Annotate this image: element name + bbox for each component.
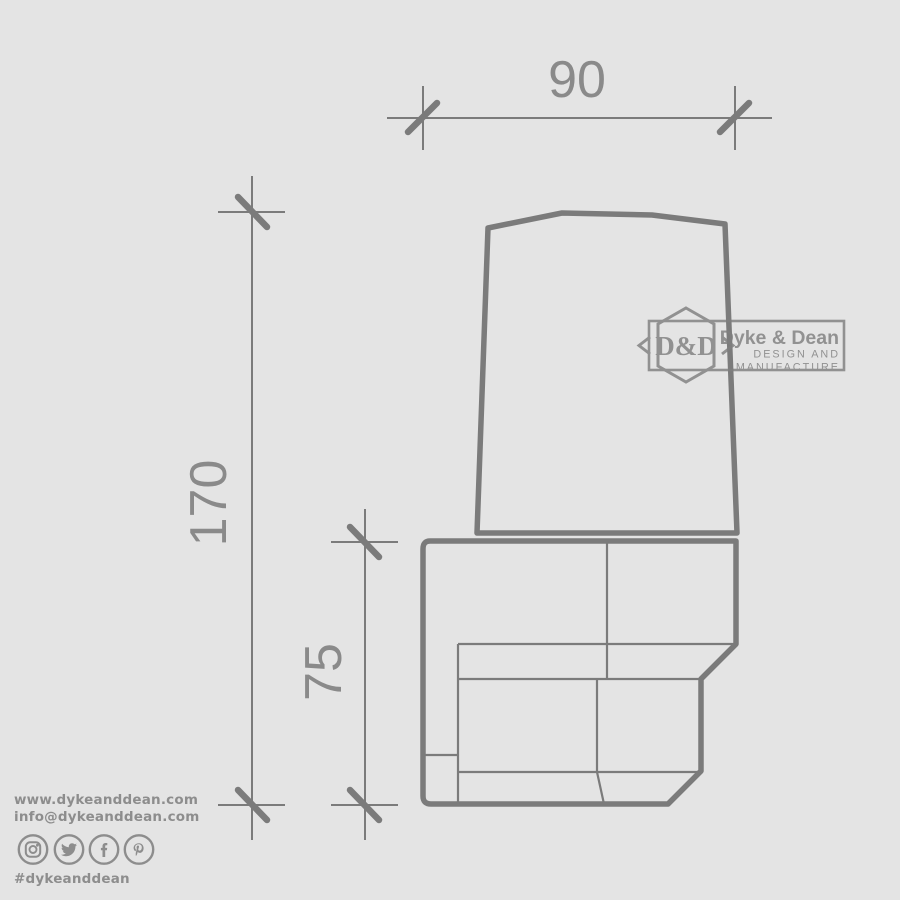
pinterest-icon (125, 835, 153, 863)
logo-monogram-text: D&D (655, 331, 717, 361)
facebook-icon (90, 835, 118, 863)
brand-logo: D&D Dyke & Dean DESIGN AND MANUFACTURE (636, 300, 852, 394)
logo-tagline-2: MANUFACTURE (736, 362, 840, 374)
dim-bracket-value: 75 (295, 643, 353, 701)
dimension-height: 170 (180, 176, 285, 840)
wall-bracket-outline (423, 541, 736, 804)
social-icons-row (14, 832, 164, 868)
instagram-icon (19, 835, 47, 863)
wall-light-technical-drawing: 90 170 75 (0, 0, 900, 900)
brand-watermark: D&D Dyke & Dean DESIGN AND MANUFACTURE (636, 300, 852, 394)
dimension-bracket-height: 75 (295, 509, 398, 840)
dim-height-value: 170 (180, 460, 238, 547)
contact-email: info@dykeanddean.com (14, 809, 214, 826)
logo-brand-name: Dyke & Dean (720, 327, 839, 349)
hashtag-text: #dykeanddean (14, 871, 214, 887)
twitter-icon (55, 835, 83, 863)
dim-width-value: 90 (548, 51, 606, 109)
dimension-width: 90 (387, 51, 772, 150)
bracket-detail-lines (423, 541, 736, 804)
logo-tagline-1: DESIGN AND (753, 349, 840, 361)
footer-contact: www.dykeanddean.com info@dykeanddean.com (14, 792, 214, 887)
website-url: www.dykeanddean.com (14, 792, 214, 809)
